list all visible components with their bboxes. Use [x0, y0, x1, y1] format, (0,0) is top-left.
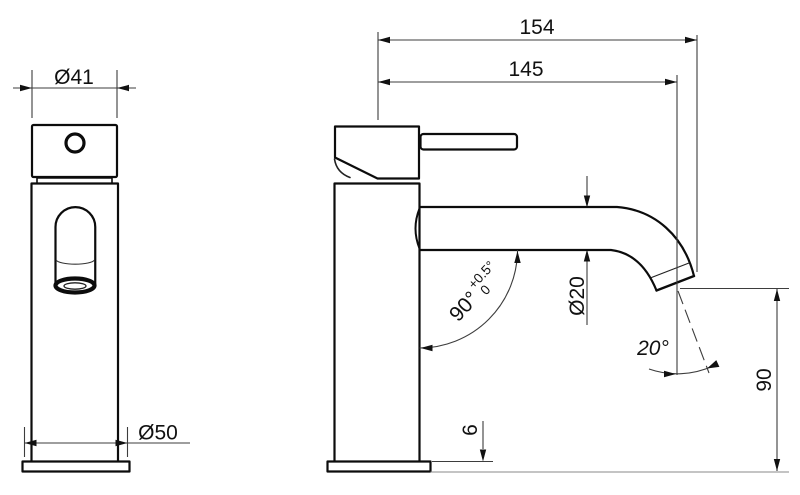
dimension-arrow	[378, 37, 390, 43]
dimension-arrow	[20, 85, 32, 91]
front-body	[32, 184, 119, 463]
label-front-base-diameter: Ø50	[138, 422, 178, 445]
dimension-arrow	[774, 459, 780, 471]
side-base-plate	[328, 462, 431, 472]
front-aerator-inner	[64, 283, 86, 289]
dimension-arrow	[665, 79, 677, 85]
dim-front-top-diameter: Ø41	[13, 66, 136, 118]
dimension-arrow	[480, 450, 486, 462]
faucet-dimension-drawing: Ø41 Ø50 154 145	[0, 0, 800, 495]
side-view	[328, 127, 695, 472]
side-body	[335, 184, 420, 463]
label-spout-angle-tol-lower: 0	[477, 282, 493, 298]
dimension-arrow	[117, 85, 129, 91]
label-base-thickness: 6	[459, 424, 482, 436]
dimension-arrow	[514, 251, 520, 263]
dimension-arrow	[707, 360, 719, 368]
label-spout-angle-group: 90° +0.5° 0	[441, 258, 507, 326]
dim-spout-height: 90	[680, 289, 789, 472]
dimension-arrow	[685, 37, 697, 43]
dim-reach-total: 154	[378, 16, 697, 43]
dim-aerator-angle: 20°	[636, 291, 719, 377]
angle-reference-line	[678, 291, 709, 373]
technical-drawing-page: Ø41 Ø50 154 145	[0, 0, 800, 495]
dimension-arrow	[774, 289, 780, 301]
angle-arc	[649, 366, 713, 374]
dimension-arrow	[664, 371, 676, 377]
side-handle-head	[335, 127, 419, 179]
label-reach-total: 154	[519, 16, 554, 39]
dimension-arrow	[421, 345, 433, 351]
dimension-arrow	[584, 250, 590, 262]
label-reach-to-aerator: 145	[508, 58, 543, 81]
dimension-arrow	[378, 79, 390, 85]
side-handle-lever	[421, 134, 518, 150]
side-spout-fill	[420, 207, 695, 291]
dim-base-thickness: 6	[432, 421, 493, 462]
dim-reach-to-aerator: 145	[378, 58, 677, 85]
dimension-arrow	[116, 440, 128, 446]
label-front-top-diameter: Ø41	[54, 66, 94, 89]
dimension-arrow	[584, 196, 590, 208]
label-aerator-angle: 20°	[636, 337, 669, 360]
side-spout-bottom	[420, 250, 657, 291]
dim-spout-angle: 90° +0.5° 0	[420, 250, 521, 351]
front-view	[23, 125, 130, 472]
front-base-plate	[23, 462, 130, 472]
label-spout-diameter: Ø20	[566, 276, 589, 316]
label-spout-height: 90	[753, 368, 776, 391]
label-spout-angle: 90°	[445, 287, 483, 326]
